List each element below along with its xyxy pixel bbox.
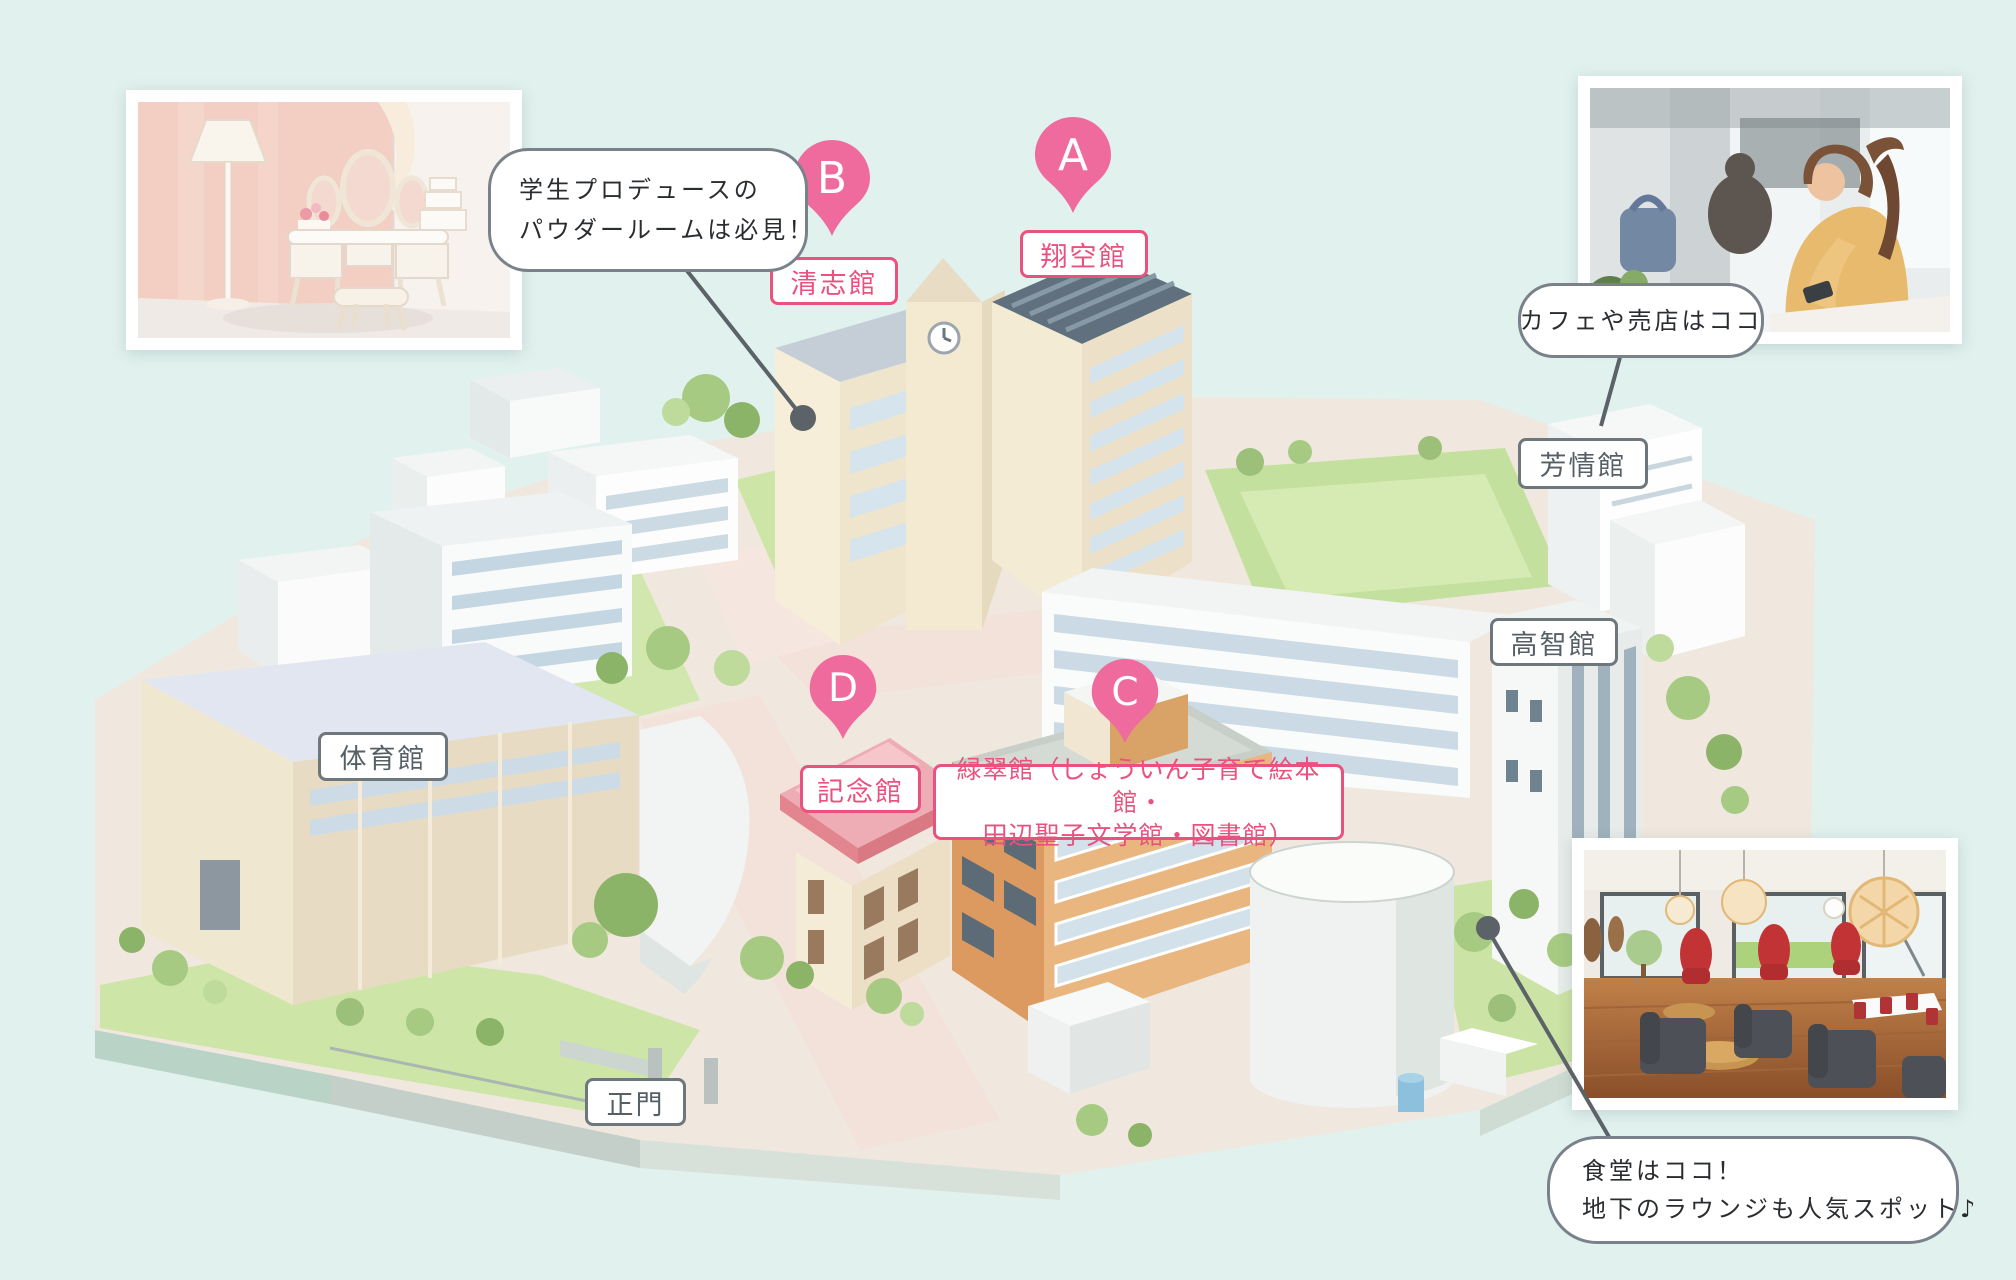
pin-letter: A — [1033, 115, 1113, 195]
label-text: 高智館 — [1511, 623, 1598, 662]
label-text: 翔空館 — [1041, 235, 1128, 274]
callout-cafe: カフェや売店はココ — [1518, 283, 1764, 358]
label-text: 緑翠館（しょういん子育て絵本館・ — [936, 753, 1341, 819]
map-pin-c: C — [1090, 657, 1160, 745]
callout-cafeteria: 食堂はココ！ 地下のラウンジも人気スポット♪ — [1547, 1136, 1959, 1244]
lounge-photo — [1572, 838, 1958, 1110]
building-label-kinenkan: 記念館 — [800, 765, 921, 813]
campus-map: 体育館 芳情館 高智館 正門 清志館 翔空館 記念館 緑翠館（しょういん子育て絵… — [0, 0, 2016, 1280]
clock-face — [929, 323, 959, 353]
water-tank — [1250, 842, 1454, 1112]
label-text: 芳情館 — [1540, 444, 1627, 483]
building-label-seimon: 正門 — [585, 1078, 686, 1126]
building-label-taiikukan: 体育館 — [318, 732, 448, 781]
callout-line: パウダールームは必見！ — [519, 210, 805, 250]
callout-powder-room: 学生プロデュースの パウダールームは必見！ — [488, 148, 808, 272]
building-seishikan — [775, 258, 1005, 645]
label-text: 記念館 — [817, 770, 904, 809]
building-label-hojokan: 芳情館 — [1518, 438, 1648, 489]
map-pin-a: A — [1033, 115, 1113, 215]
label-text: 正門 — [607, 1083, 665, 1122]
pin-letter: C — [1090, 657, 1160, 727]
building-label-kochikan: 高智館 — [1490, 618, 1618, 666]
callout-line: 食堂はココ！ — [1582, 1152, 1956, 1190]
building-label-shokukan: 翔空館 — [1020, 230, 1148, 278]
callout-line: カフェや売店はココ — [1520, 301, 1763, 341]
building-label-ryokusuikan: 緑翠館（しょういん子育て絵本館・ 田辺聖子文学館・図書館） — [933, 764, 1344, 840]
label-text: 清志館 — [791, 262, 878, 301]
callout-line: 学生プロデュースの — [519, 170, 805, 210]
pin-letter: D — [808, 653, 878, 723]
map-pin-d: D — [808, 653, 878, 741]
callout-line: 地下のラウンジも人気スポット♪ — [1582, 1190, 1956, 1228]
label-text: 田辺聖子文学館・図書館） — [982, 819, 1294, 852]
label-text: 体育館 — [340, 737, 427, 776]
powder-room-photo — [126, 90, 522, 350]
